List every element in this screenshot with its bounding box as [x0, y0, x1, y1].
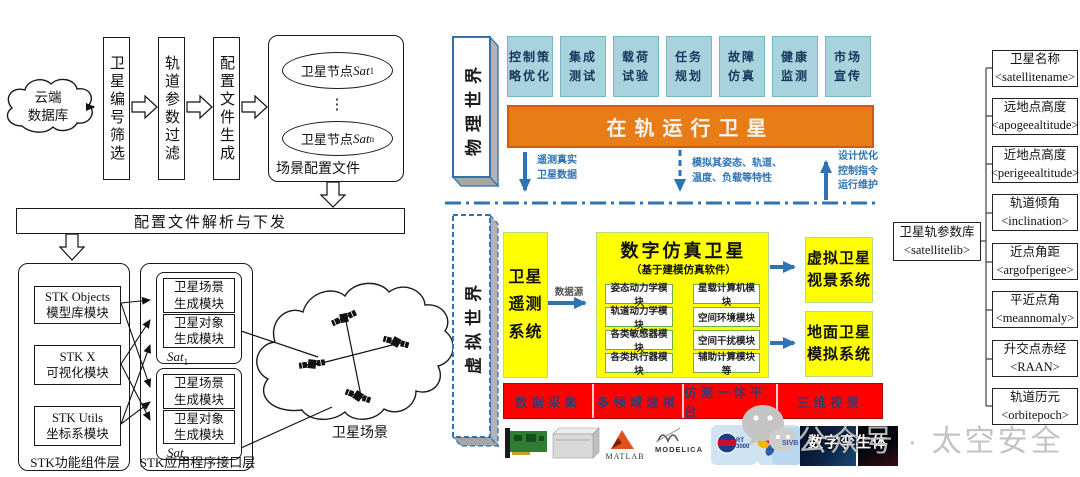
virtual-world-label: 虚拟世界: [461, 249, 483, 404]
object-generate-module: 卫星对象 生成模块: [163, 314, 235, 348]
app-control-strategy: 控制策 略优化: [507, 36, 553, 97]
stk-api-layer-label: STK应用程序接口层: [135, 453, 260, 469]
sat-word: Sat: [353, 63, 370, 79]
satellite-node-last: 卫星节点Satn: [282, 121, 393, 156]
parameter-tree-connectors: [981, 68, 992, 406]
digital-simulation-satellite-box: 数字仿真卫星 （基于建模仿真软件） 姿态动力学模块 轨道动力学模块 各类敏感器模…: [596, 232, 769, 378]
node-prefix: 卫星节点: [301, 61, 353, 80]
object-generate-module: 卫星对象 生成模块: [163, 410, 235, 444]
satellite-icon: [330, 308, 358, 329]
design-arrow-label: 设计优化 控制指令 运行维护: [838, 150, 890, 194]
app-payload-test: 载荷 试验: [613, 36, 659, 97]
stk-objects-module: STK Objects 模型库模块: [34, 286, 121, 324]
sat-word: Sat: [353, 131, 370, 147]
satellite-icon: [298, 357, 325, 371]
step-satellite-id-filter: 卫星编号筛选: [103, 37, 130, 180]
matlab-logo-label: MATLAB: [602, 451, 648, 461]
capability-3d-view: 三维视景: [776, 384, 882, 418]
module-auxiliary-compute: 辅助计算模块等: [693, 353, 760, 373]
satellite-node-first: 卫星节点Sat1: [282, 52, 393, 89]
step-orbit-param-filter: 轨道参数过滤: [158, 37, 185, 180]
param-arg-of-perigee: 近点角距 <argofperigee>: [992, 243, 1078, 280]
scene-generate-module: 卫星场景 生成模块: [163, 374, 235, 409]
app-fault-simulation: 故障 仿真: [719, 36, 765, 97]
module-attitude-dynamics: 姿态动力学模块: [605, 284, 673, 304]
app-marketing: 市场 宣传: [825, 36, 871, 97]
param-satellite-name: 卫星名称 <satellitename>: [992, 50, 1078, 87]
cloud-database-label: 云端 数据库: [12, 88, 84, 126]
param-mean-anomaly: 平近点角 <meannomaly>: [992, 291, 1078, 328]
on-orbit-satellite-bar: 在轨运行卫星: [507, 105, 874, 148]
sat-sub: 1: [184, 357, 189, 367]
sat-word: Sat: [167, 349, 184, 364]
satellite-orbit-library-box: 卫星轨参数库 <satellitelib>: [893, 222, 981, 261]
sat-sub: n: [370, 134, 375, 144]
sat-group-first: 卫星场景 生成模块 卫星对象 生成模块 Sat1: [156, 272, 242, 364]
param-apogee-altitude: 远地点高度 <apogeealtitude>: [992, 98, 1078, 135]
sat-sub: 1: [370, 66, 375, 76]
module-space-interference: 空间干扰模块: [693, 330, 760, 350]
stk-x-module: STK X 可视化模块: [34, 345, 121, 385]
module-actuators: 各类执行器模块: [605, 353, 673, 373]
sat-group-last: 卫星场景 生成模块 卫星对象 生成模块 Satn: [156, 368, 242, 460]
step-config-file-generate: 配置文件生成: [213, 37, 240, 180]
capability-data-collection: 数据采集: [504, 384, 592, 418]
digital-satellite-title: 数字仿真卫星: [597, 238, 770, 262]
app-health-monitor: 健康 监测: [772, 36, 818, 97]
satellite-icon: [382, 333, 410, 350]
app-integration-test: 集成 测试: [560, 36, 606, 97]
pci-card-icon: [505, 428, 547, 458]
param-perigee-altitude: 近地点高度 <perigeealtitude>: [992, 146, 1078, 183]
app-mission-planning: 任务 规划: [666, 36, 712, 97]
satellite-telemetry-system-box: 卫星遥测系统: [503, 232, 548, 378]
param-raan: 升交点赤经 <RAAN>: [992, 340, 1078, 377]
modelica-logo-label: MODELICA: [648, 444, 710, 454]
stk-components-layer-label: STK功能组件层: [19, 453, 131, 469]
module-space-environment: 空间环境模块: [693, 307, 760, 327]
rt3000-tile-label: RT 3000: [736, 438, 758, 448]
module-onboard-computer: 星载计算机模块: [693, 284, 760, 304]
config-parse-dispatch-bar: 配置文件解析与下发: [16, 208, 405, 234]
capability-bar: 数据采集 多领域建模 仿测一体平台 三维视景: [503, 383, 883, 419]
datasource-label: 数据源: [547, 284, 591, 298]
stk-utils-module: STK Utils 坐标系模块: [34, 406, 121, 446]
stk-components-layer-box: STK Objects 模型库模块 STK X 可视化模块 STK Utils …: [18, 263, 130, 471]
capability-sim-test-platform: 仿测一体平台: [682, 384, 776, 418]
scene-config-box: 卫星节点Sat1 ⋮ 卫星节点Satn 场景配置文件: [268, 35, 404, 182]
matlab-logo-icon: [611, 430, 634, 449]
satellite-icon: [344, 387, 372, 406]
digital-satellite-subtitle: （基于建模仿真软件）: [597, 262, 770, 276]
capability-multidomain-modeling: 多领域建模: [592, 384, 682, 418]
module-sensors: 各类敏感器模块: [605, 330, 673, 350]
modelica-logo-icon: [656, 428, 680, 442]
simulate-arrow-label: 模拟其姿态、轨道、 温度、负载等特性: [692, 157, 806, 183]
watermark-text: 公众号 · 太空安全: [797, 416, 1077, 458]
ellipsis-dots: ⋮: [327, 89, 347, 119]
physical-world-label: 物理世界: [461, 31, 483, 186]
node-prefix: 卫星节点: [301, 129, 353, 148]
chassis-device-icon: [553, 428, 599, 458]
param-inclination: 轨道倾角 <inclination>: [992, 194, 1078, 231]
scene-generate-module: 卫星场景 生成模块: [163, 278, 235, 313]
satellite-scene-label: 卫星场景: [322, 423, 398, 440]
diagram-canvas: 云端 数据库 卫星编号筛选 轨道参数过滤 配置文件生成 卫星节点Sat1 ⋮ 卫…: [0, 0, 1080, 477]
stk-api-layer-box: 卫星场景 生成模块 卫星对象 生成模块 Sat1 卫星场景 生成模块 卫星对象 …: [140, 263, 253, 471]
telemetry-arrow-label: 遥测真实 卫星数据: [537, 154, 587, 182]
virtual-satellite-view-system-box: 虚拟卫星 视景系统: [805, 237, 873, 303]
ground-satellite-simulation-system-box: 地面卫星 模拟系统: [805, 311, 873, 377]
module-orbit-dynamics: 轨道动力学模块: [605, 307, 673, 327]
scene-config-label: 场景配置文件: [276, 158, 402, 178]
